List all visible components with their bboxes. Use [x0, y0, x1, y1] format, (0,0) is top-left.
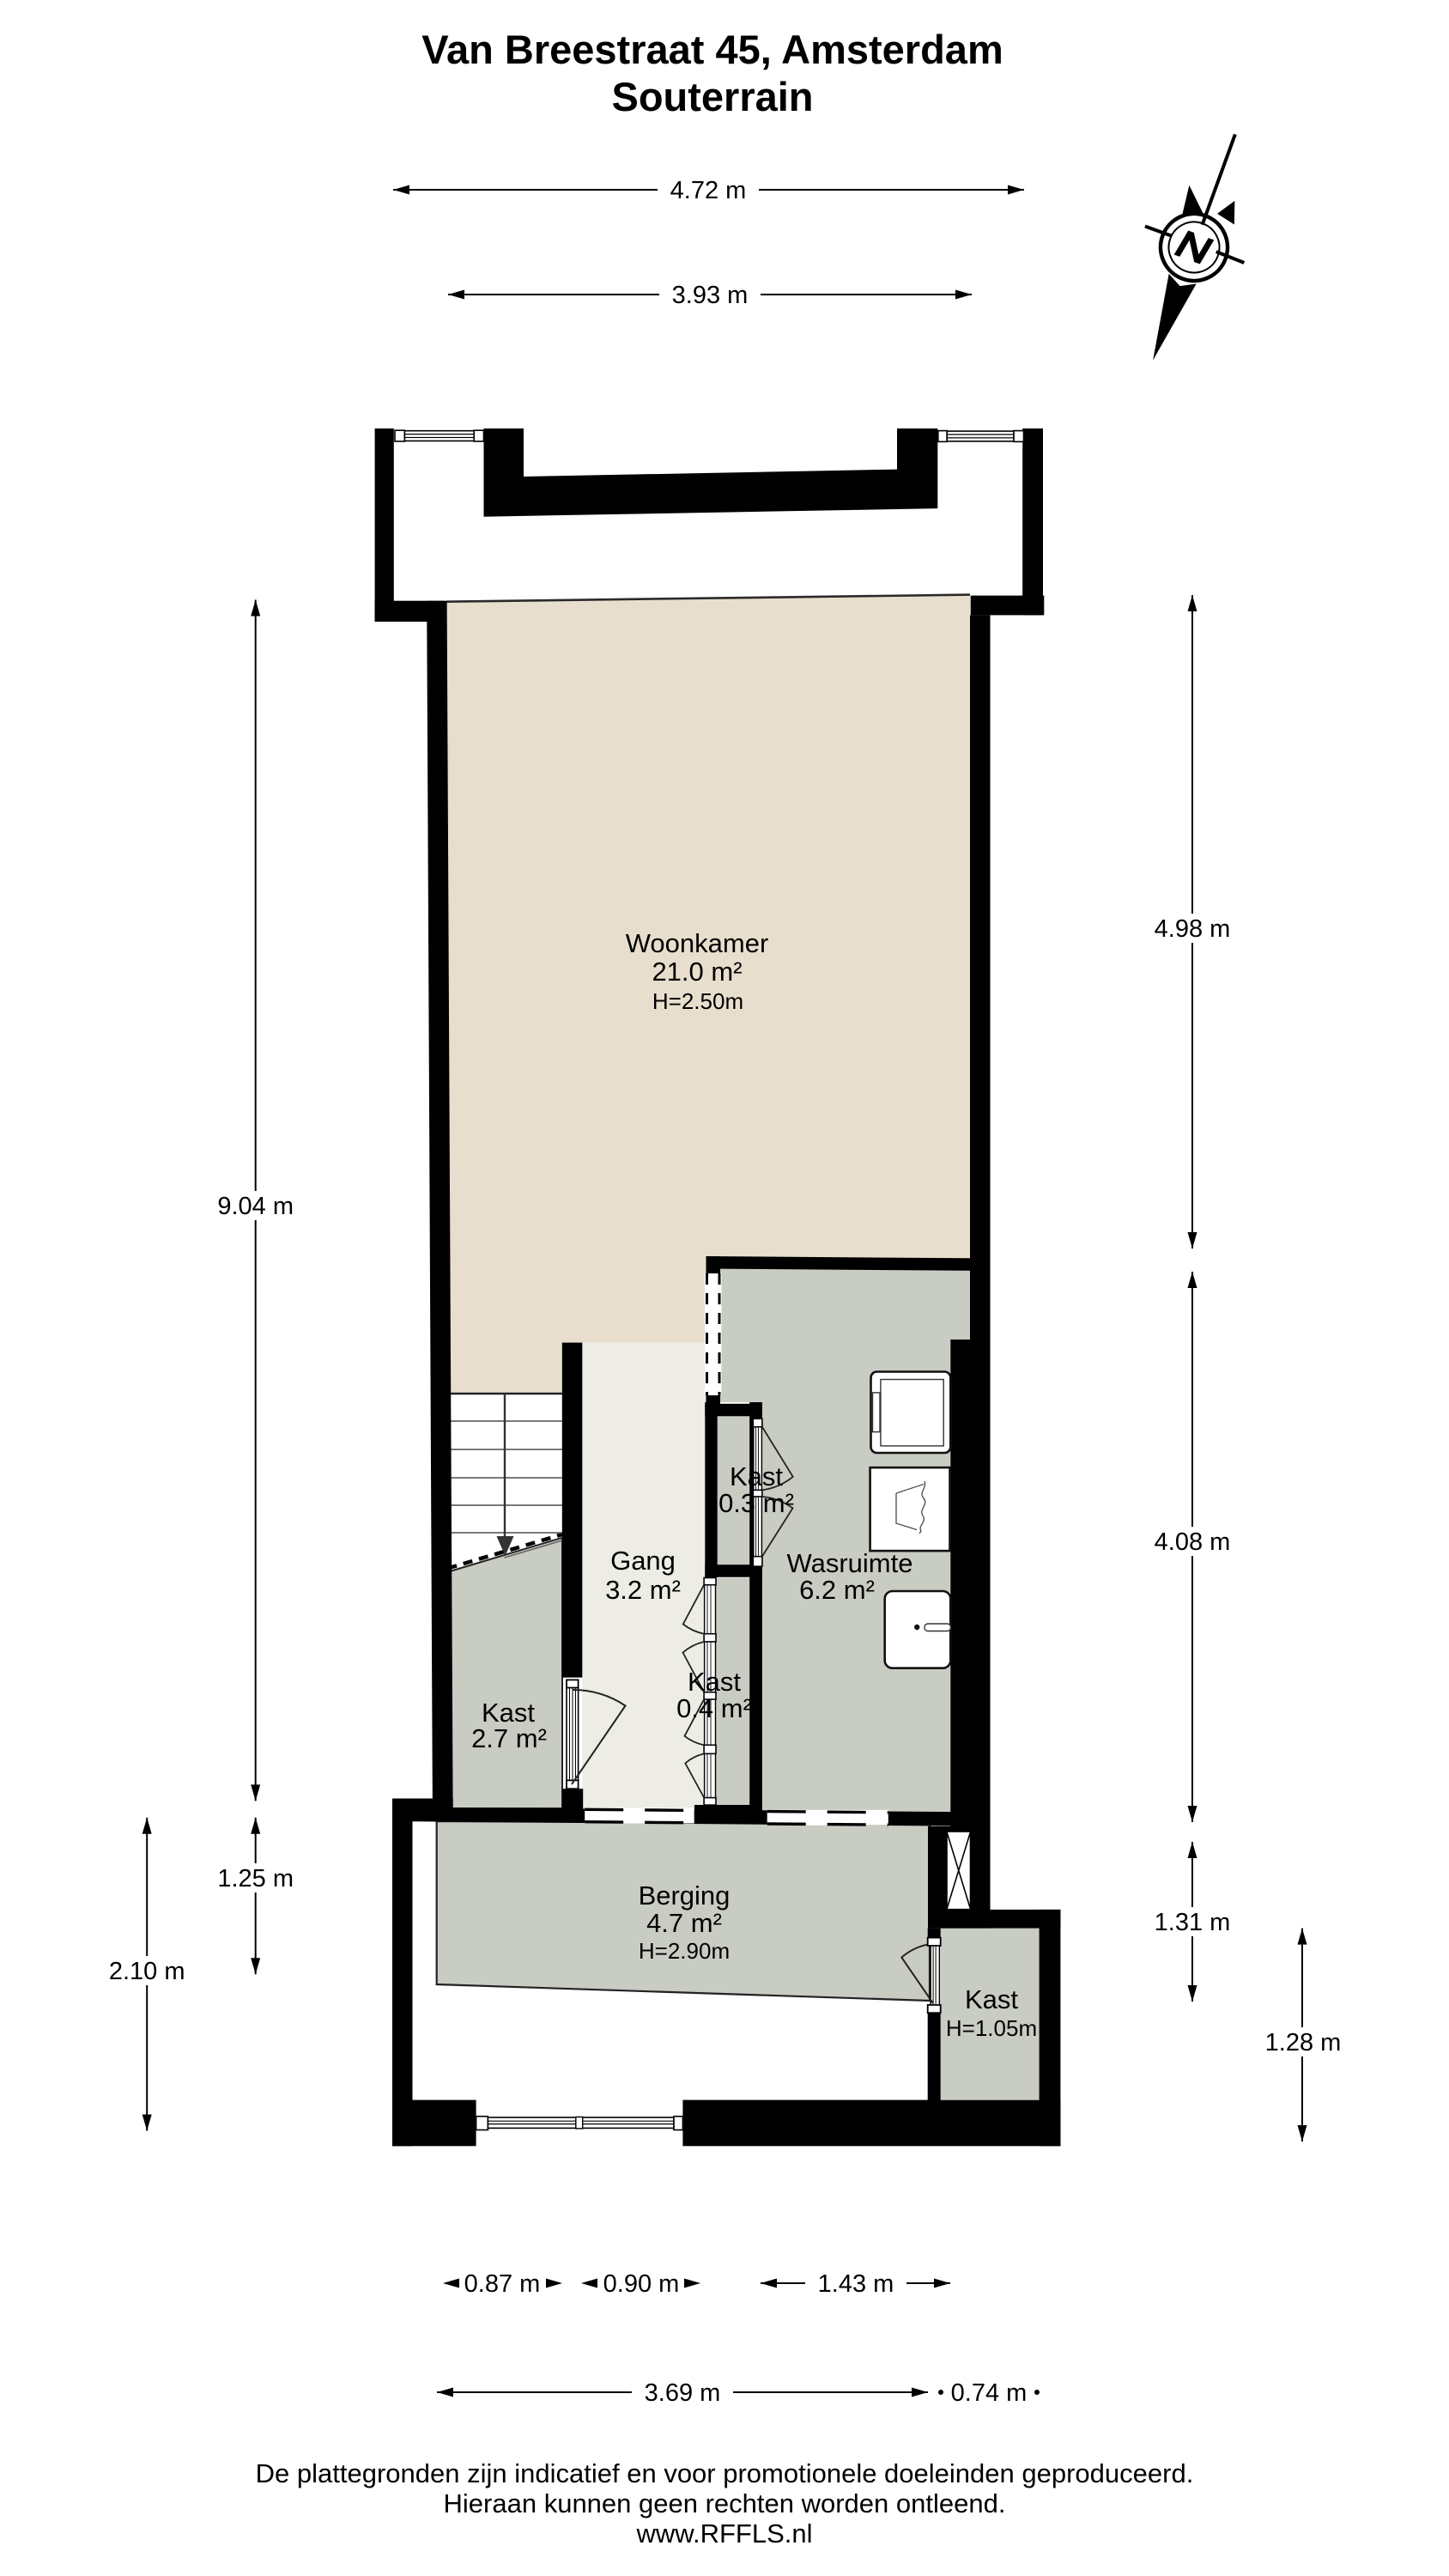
svg-text:4.72 m: 4.72 m [670, 177, 747, 204]
svg-text:0.90 m: 0.90 m [603, 2270, 680, 2298]
svg-text:Souterrain: Souterrain [611, 74, 813, 119]
svg-text:www.RFFLS.nl: www.RFFLS.nl [636, 2518, 813, 2549]
svg-text:3.2 m²: 3.2 m² [605, 1575, 681, 1605]
svg-text:1.25 m: 1.25 m [217, 1865, 294, 1893]
svg-text:De plattegronden zijn indicati: De plattegronden zijn indicatief en voor… [256, 2458, 1194, 2488]
svg-text:Kast: Kast [730, 1461, 783, 1492]
svg-text:Berging: Berging [639, 1880, 731, 1911]
svg-text:H=2.50m: H=2.50m [652, 988, 743, 1014]
svg-text:2.7 m²: 2.7 m² [471, 1723, 547, 1753]
svg-text:0.3 m²: 0.3 m² [718, 1488, 794, 1518]
svg-text:Van Breestraat 45, Amsterdam: Van Breestraat 45, Amsterdam [421, 27, 1003, 72]
svg-text:3.93 m: 3.93 m [672, 282, 749, 309]
svg-text:3.69 m: 3.69 m [645, 2379, 721, 2407]
svg-text:Kast: Kast [688, 1667, 741, 1697]
svg-text:2.10 m: 2.10 m [109, 1958, 185, 1985]
svg-text:4.7 m²: 4.7 m² [646, 1908, 722, 1938]
svg-text:21.0 m²: 21.0 m² [652, 957, 742, 987]
svg-text:Gang: Gang [610, 1546, 676, 1576]
svg-text:H=2.90m: H=2.90m [639, 1938, 730, 1964]
svg-text:0.74 m: 0.74 m [951, 2379, 1028, 2407]
svg-text:4.08 m: 4.08 m [1155, 1528, 1231, 1556]
svg-text:Woonkamer: Woonkamer [626, 928, 769, 958]
svg-text:0.4 m²: 0.4 m² [676, 1693, 752, 1723]
svg-text:Wasruimte: Wasruimte [787, 1548, 913, 1578]
svg-text:1.31 m: 1.31 m [1155, 1909, 1231, 1936]
svg-text:4.98 m: 4.98 m [1155, 915, 1231, 943]
svg-text:6.2 m²: 6.2 m² [799, 1575, 875, 1605]
svg-text:1.43 m: 1.43 m [818, 2270, 894, 2298]
svg-text:Hieraan kunnen geen rechten wo: Hieraan kunnen geen rechten worden ontle… [444, 2488, 1006, 2518]
svg-text:0.87 m: 0.87 m [464, 2270, 541, 2298]
svg-text:9.04 m: 9.04 m [217, 1193, 294, 1220]
svg-text:Kast: Kast [965, 1984, 1018, 2014]
svg-text:H=1.05m: H=1.05m [946, 2015, 1037, 2041]
svg-text:1.28 m: 1.28 m [1265, 2029, 1342, 2057]
